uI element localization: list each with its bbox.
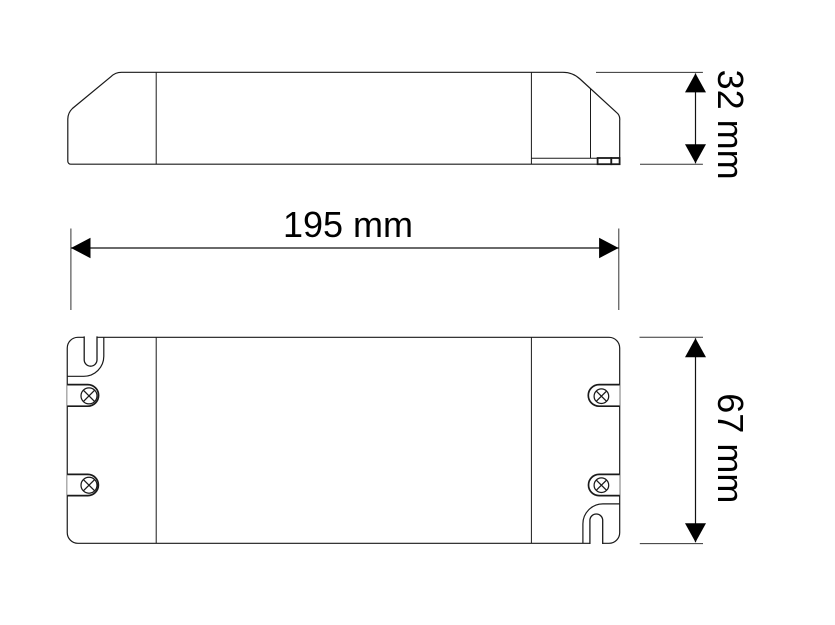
svg-text:67 mm: 67 mm — [710, 393, 751, 503]
svg-text:195 mm: 195 mm — [283, 204, 413, 245]
svg-text:32 mm: 32 mm — [710, 70, 751, 180]
